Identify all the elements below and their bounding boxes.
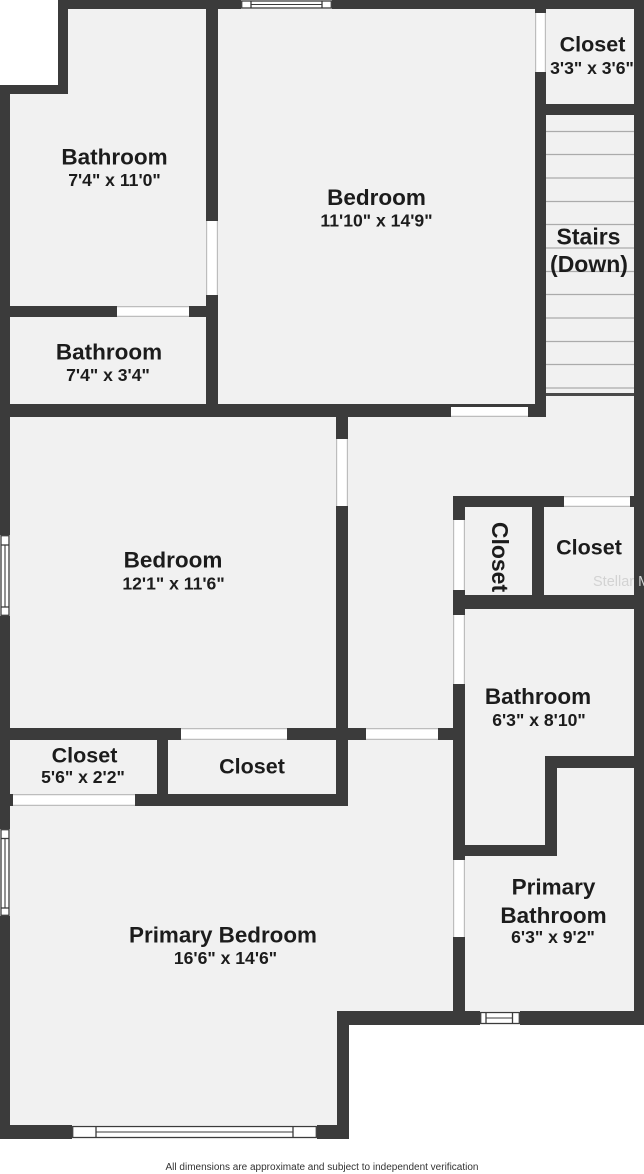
svg-text:(Down): (Down) [550,251,628,277]
svg-text:Closet: Closet [560,33,626,57]
svg-text:11'10" x 14'9": 11'10" x 14'9" [320,211,432,231]
svg-text:6'3" x 8'10": 6'3" x 8'10" [492,710,586,730]
svg-text:All dimensions are approximate: All dimensions are approximate and subje… [166,1162,479,1173]
svg-text:3'3" x 3'6": 3'3" x 3'6" [550,58,634,78]
svg-text:Bathroom: Bathroom [61,145,167,170]
svg-text:Bedroom: Bedroom [327,185,426,210]
svg-text:Stairs: Stairs [557,224,621,250]
svg-text:16'6" x 14'6": 16'6" x 14'6" [174,948,277,968]
svg-text:Bathroom: Bathroom [500,903,606,928]
svg-text:Closet: Closet [52,744,118,768]
svg-text:Primary Bedroom: Primary Bedroom [129,923,317,948]
svg-text:7'4" x 3'4": 7'4" x 3'4" [66,365,150,385]
svg-text:Bathroom: Bathroom [485,684,591,709]
svg-text:Closet: Closet [556,536,622,560]
svg-text:7'4" x 11'0": 7'4" x 11'0" [68,170,161,190]
svg-text:12'1" x 11'6": 12'1" x 11'6" [122,574,224,594]
svg-text:Bathroom: Bathroom [56,340,162,365]
svg-text:5'6" x 2'2": 5'6" x 2'2" [41,767,125,787]
svg-text:Closet: Closet [219,755,285,779]
svg-text:6'3" x 9'2": 6'3" x 9'2" [511,927,595,947]
svg-text:Closet: Closet [487,522,513,593]
svg-text:Primary: Primary [512,875,596,900]
svg-text:Stellar MLS: Stellar MLS [593,574,644,590]
svg-text:Bedroom: Bedroom [124,548,223,573]
